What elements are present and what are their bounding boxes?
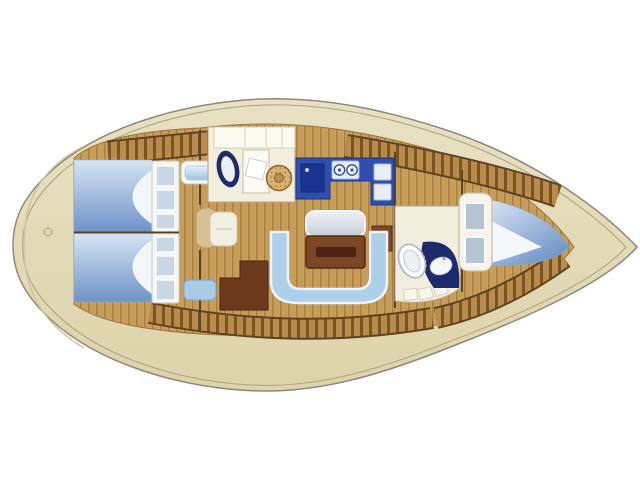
stove-burner-center bbox=[338, 168, 341, 171]
galley-twin-sink bbox=[374, 184, 391, 200]
table-folded-leaf bbox=[306, 211, 365, 237]
aft-shelf-box bbox=[156, 190, 175, 210]
galley-sink-basin bbox=[301, 164, 324, 192]
nav-seat bbox=[184, 280, 216, 300]
forward-head bbox=[393, 206, 460, 302]
aft-shelf-box bbox=[156, 214, 175, 229]
stove-burner-center bbox=[350, 168, 353, 171]
aft-cabin-upper bbox=[74, 160, 179, 232]
aft-shelf-box bbox=[156, 256, 175, 276]
aft-shelf-box bbox=[156, 237, 175, 252]
yacht-layout-svg bbox=[0, 0, 640, 480]
yacht-layout-page bbox=[0, 0, 640, 480]
round-washbasin-drain bbox=[275, 174, 284, 183]
aft-shelf-box bbox=[156, 280, 175, 300]
aft-shelf-box bbox=[156, 166, 175, 186]
aft-cabin-lower bbox=[74, 233, 179, 303]
forward-head-tile bbox=[418, 287, 433, 300]
aft-head bbox=[208, 127, 295, 202]
shower-grate bbox=[245, 158, 267, 180]
stern-fitting-dot bbox=[44, 228, 52, 236]
saloon-table-slot bbox=[316, 247, 356, 257]
forward-head-tile bbox=[404, 288, 418, 300]
galley-faucet bbox=[305, 168, 309, 172]
headboard-shelf-front bbox=[465, 237, 485, 264]
aft-head-cabinets bbox=[214, 127, 295, 148]
galley-twin-sink bbox=[374, 164, 391, 180]
headboard-shelf-front bbox=[465, 203, 485, 230]
